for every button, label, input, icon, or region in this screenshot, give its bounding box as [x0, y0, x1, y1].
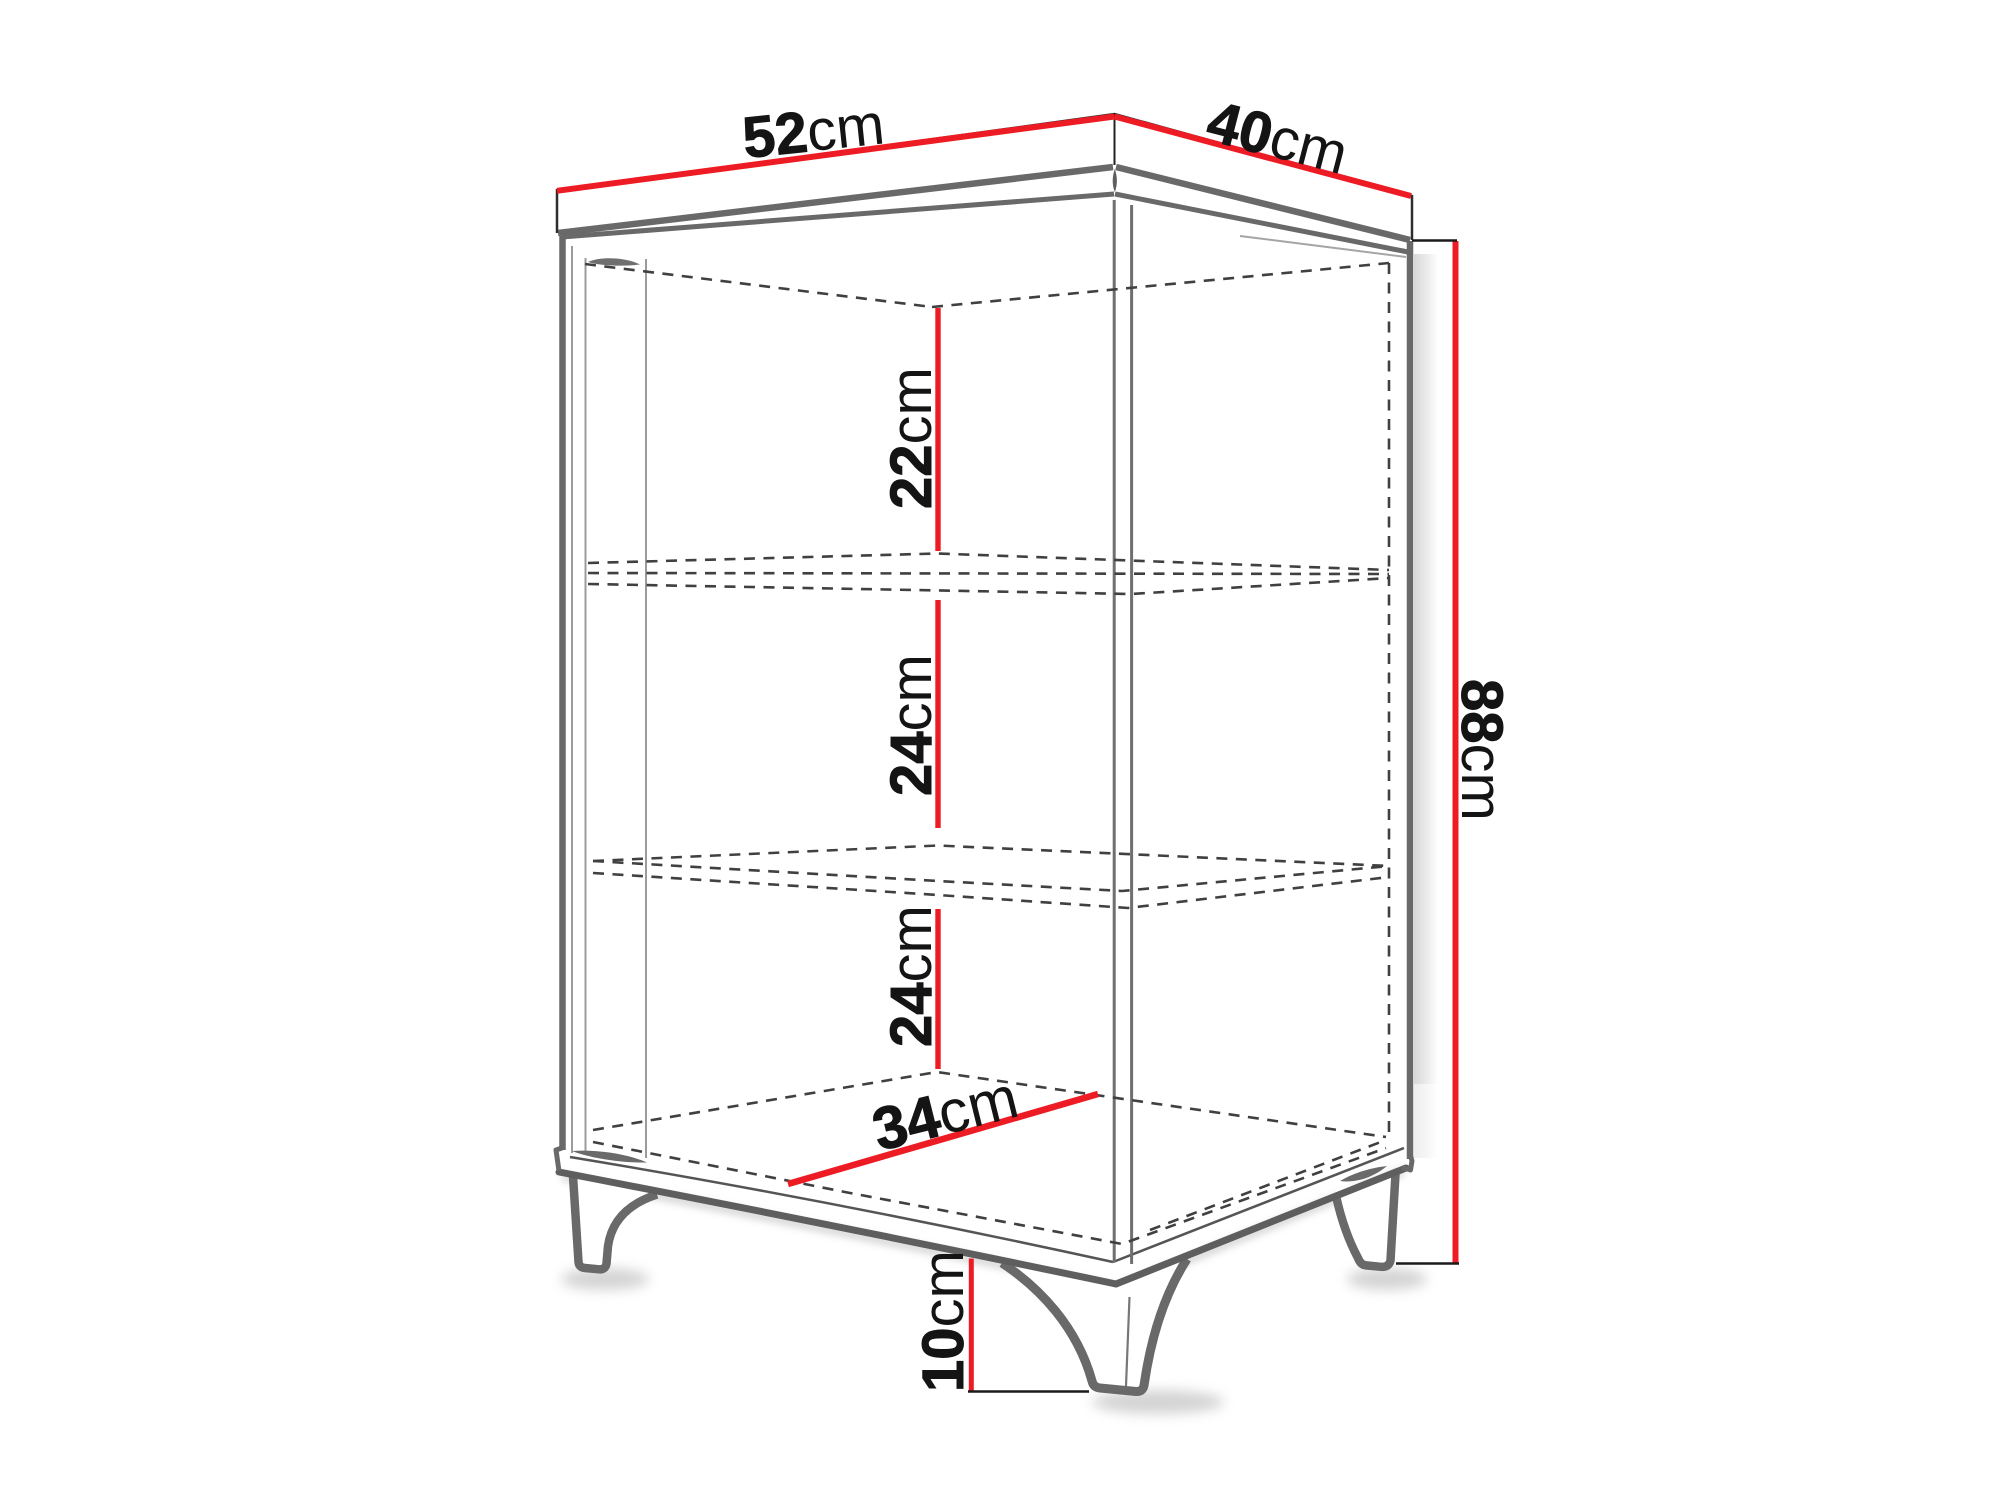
svg-text:88cm: 88cm — [1449, 679, 1514, 821]
svg-text:24cm: 24cm — [879, 654, 944, 796]
svg-text:10cm: 10cm — [911, 1250, 976, 1392]
svg-text:22cm: 22cm — [879, 367, 944, 509]
svg-text:24cm: 24cm — [879, 905, 944, 1047]
